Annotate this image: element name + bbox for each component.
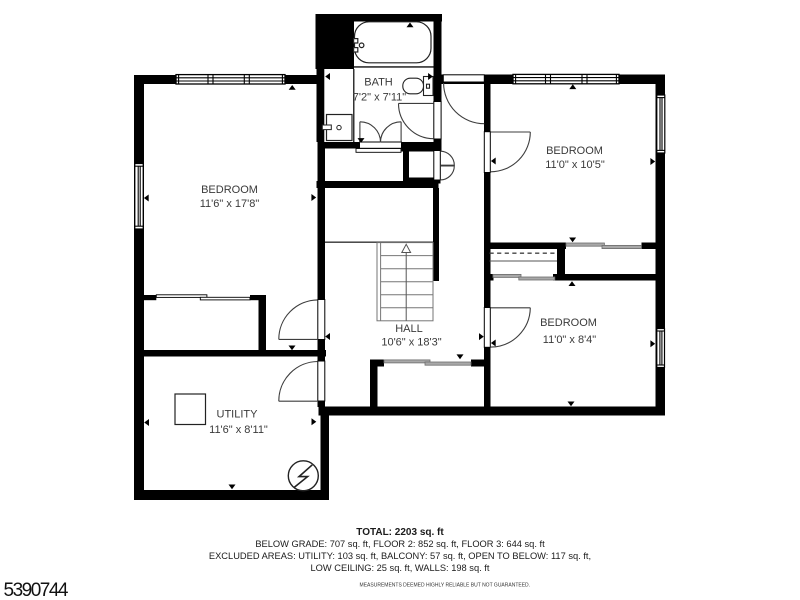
svg-text:11'6" x 17'8": 11'6" x 17'8" — [200, 198, 260, 210]
svg-text:BATH: BATH — [364, 77, 393, 89]
svg-text:TOTAL: 2203 sq. ft: TOTAL: 2203 sq. ft — [356, 527, 444, 538]
svg-text:LOW CEILING: 25 sq. ft, WALLS:: LOW CEILING: 25 sq. ft, WALLS: 198 sq. f… — [311, 563, 490, 573]
svg-text:HALL: HALL — [395, 323, 423, 335]
svg-text:10'6" x 18'3": 10'6" x 18'3" — [381, 337, 441, 349]
svg-text:MEASUREMENTS DEEMED HIGHLY REL: MEASUREMENTS DEEMED HIGHLY RELIABLE BUT … — [360, 582, 531, 588]
svg-text:7'2" x 7'11": 7'2" x 7'11" — [353, 92, 406, 104]
svg-text:BEDROOM: BEDROOM — [546, 145, 603, 157]
svg-text:11'0" x 8'4": 11'0" x 8'4" — [543, 334, 596, 346]
svg-text:BEDROOM: BEDROOM — [540, 317, 597, 329]
svg-text:5390744: 5390744 — [4, 580, 69, 600]
svg-text:11'0" x 10'5": 11'0" x 10'5" — [545, 159, 605, 171]
svg-text:BELOW GRADE: 707 sq. ft, FLOOR: BELOW GRADE: 707 sq. ft, FLOOR 2: 852 sq… — [255, 539, 545, 549]
svg-text:BEDROOM: BEDROOM — [201, 184, 258, 196]
svg-text:11'6" x 8'11": 11'6" x 8'11" — [209, 424, 268, 436]
svg-text:UTILITY: UTILITY — [217, 408, 259, 420]
svg-text:EXCLUDED AREAS: UTILITY: 103 s: EXCLUDED AREAS: UTILITY: 103 sq. ft, BAL… — [209, 551, 591, 561]
